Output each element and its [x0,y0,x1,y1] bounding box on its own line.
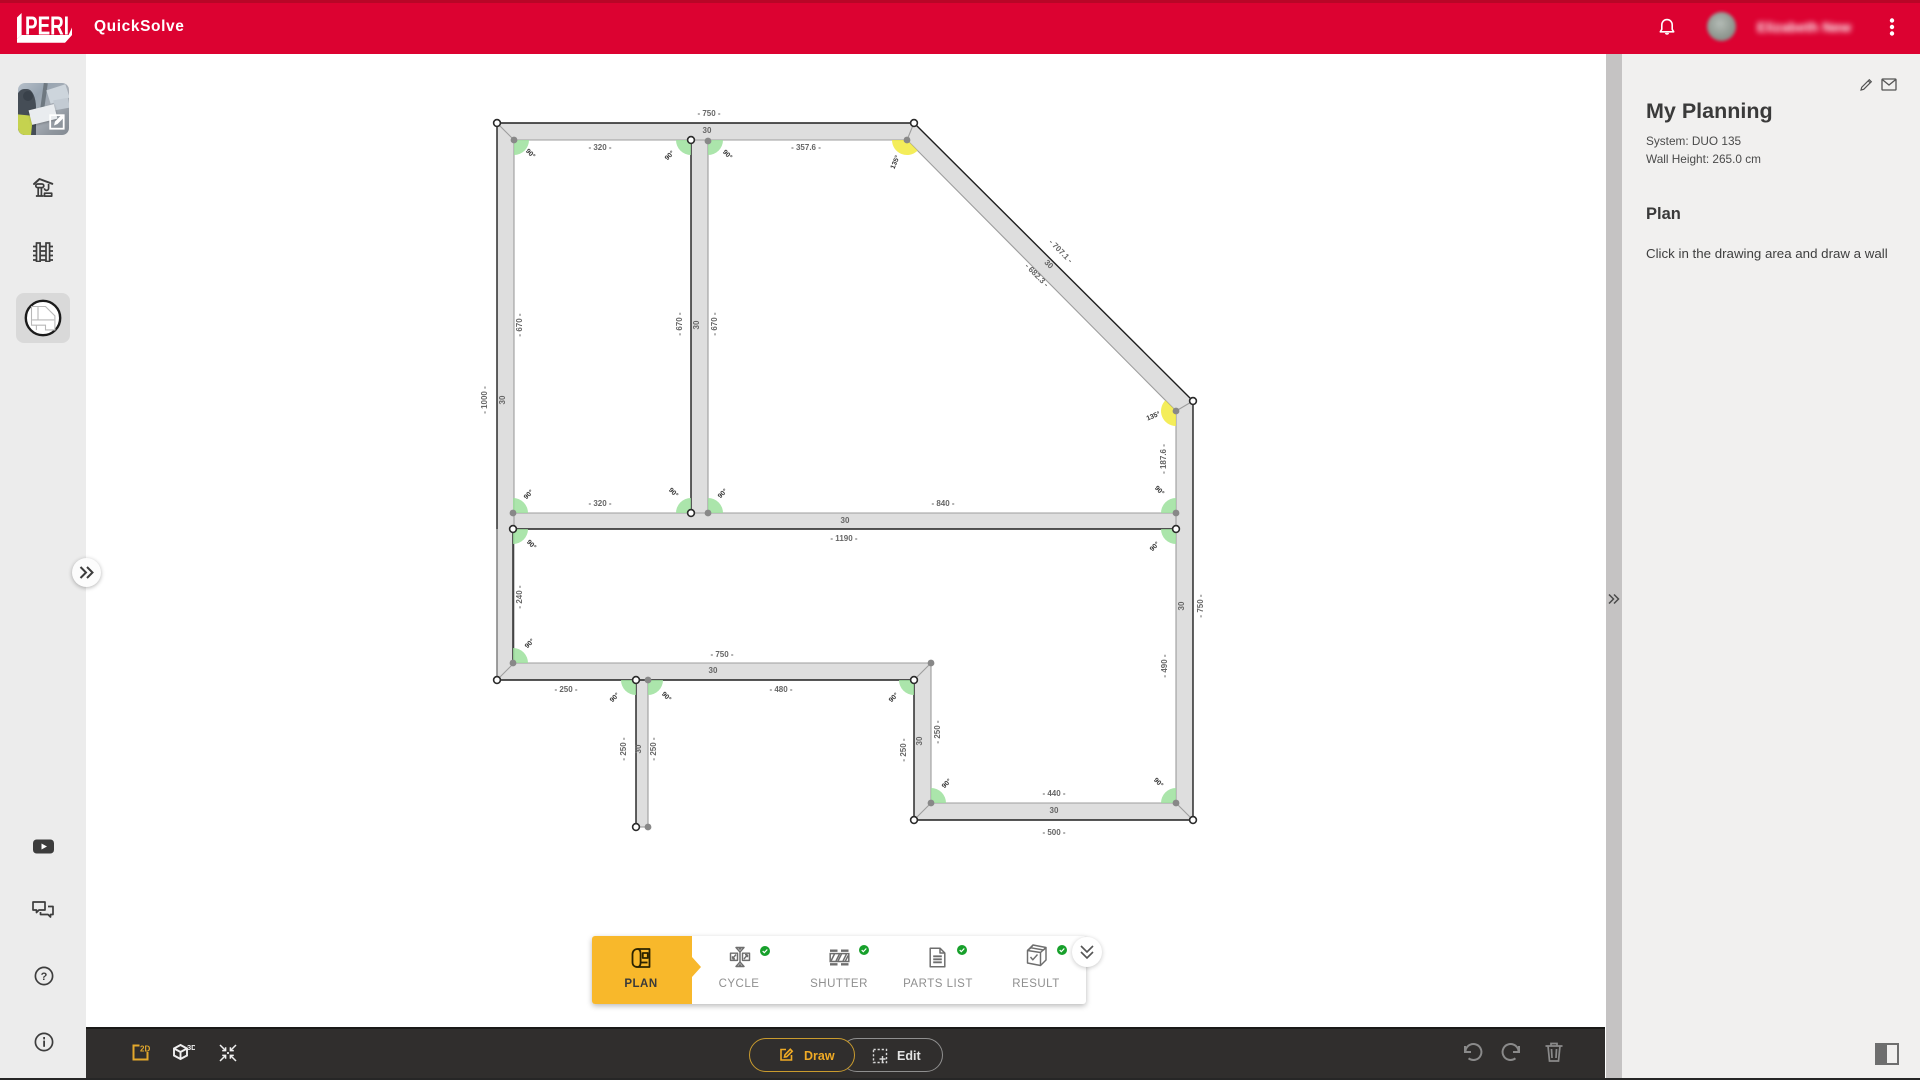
svg-text:- 320 -: - 320 - [588,143,611,152]
svg-text:30: 30 [709,666,718,675]
svg-text:- 670 -: - 670 - [675,312,684,335]
svg-text:- 750 -: - 750 - [710,650,733,659]
svg-text:- 250 -: - 250 - [899,738,908,761]
svg-text:30: 30 [1050,806,1059,815]
svg-text:30: 30 [1177,601,1186,610]
svg-text:- 250 -: - 250 - [933,720,942,743]
svg-text:30: 30 [703,126,712,135]
svg-text:- 670 -: - 670 - [515,313,524,336]
svg-text:- 480 -: - 480 - [769,685,792,694]
svg-text:- 240 -: - 240 - [515,585,524,608]
svg-text:- 187.6 -: - 187.6 - [1159,444,1168,474]
svg-text:- 440 -: - 440 - [1042,789,1065,798]
svg-text:- 670 -: - 670 - [710,312,719,335]
svg-text:90°: 90° [887,691,900,704]
svg-text:- 1000 -: - 1000 - [480,386,489,414]
svg-text:- 250 -: - 250 - [554,685,577,694]
svg-text:90°: 90° [608,691,621,704]
svg-text:- 750 -: - 750 - [697,109,720,118]
svg-text:?: ? [40,971,47,983]
svg-text:90°: 90° [660,690,673,703]
svg-text:30: 30 [634,744,643,753]
svg-text:30: 30 [498,395,507,404]
svg-text:PERI: PERI [25,11,69,41]
svg-text:- 250 -: - 250 - [649,737,658,760]
svg-text:- 320 -: - 320 - [588,499,611,508]
svg-text:3D: 3D [187,1043,195,1052]
svg-text:- 250 -: - 250 - [619,737,628,760]
svg-text:2D: 2D [140,1045,150,1054]
svg-text:- 840 -: - 840 - [931,499,954,508]
svg-text:- 1190 -: - 1190 - [830,534,857,543]
svg-text:30: 30 [692,320,701,329]
svg-text:30: 30 [841,516,850,525]
svg-text:- 500 -: - 500 - [1042,828,1065,837]
svg-text:30: 30 [915,736,924,745]
svg-text:- 357.6 -: - 357.6 - [791,143,821,152]
svg-text:- 750 -: - 750 - [1196,594,1205,617]
svg-text:- 490 -: - 490 - [1160,654,1169,677]
